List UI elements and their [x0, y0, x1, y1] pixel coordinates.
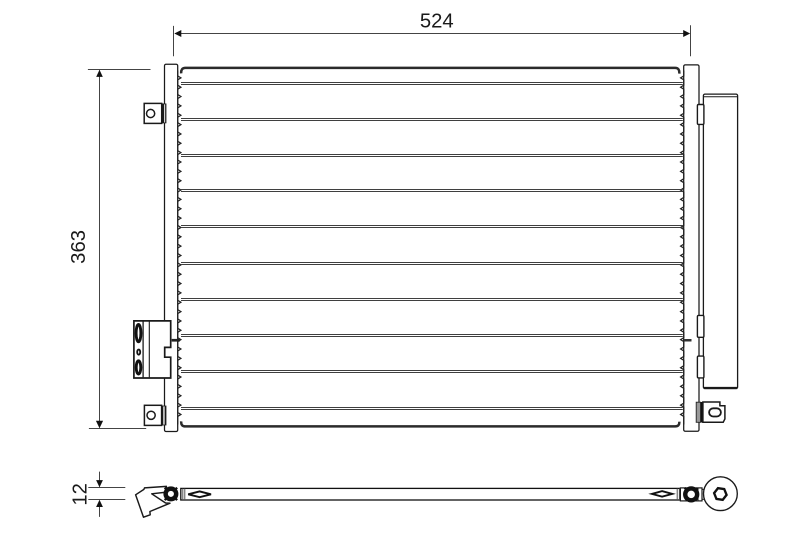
svg-text:12: 12: [69, 483, 91, 506]
svg-text:524: 524: [420, 10, 454, 32]
svg-text:363: 363: [68, 230, 90, 264]
